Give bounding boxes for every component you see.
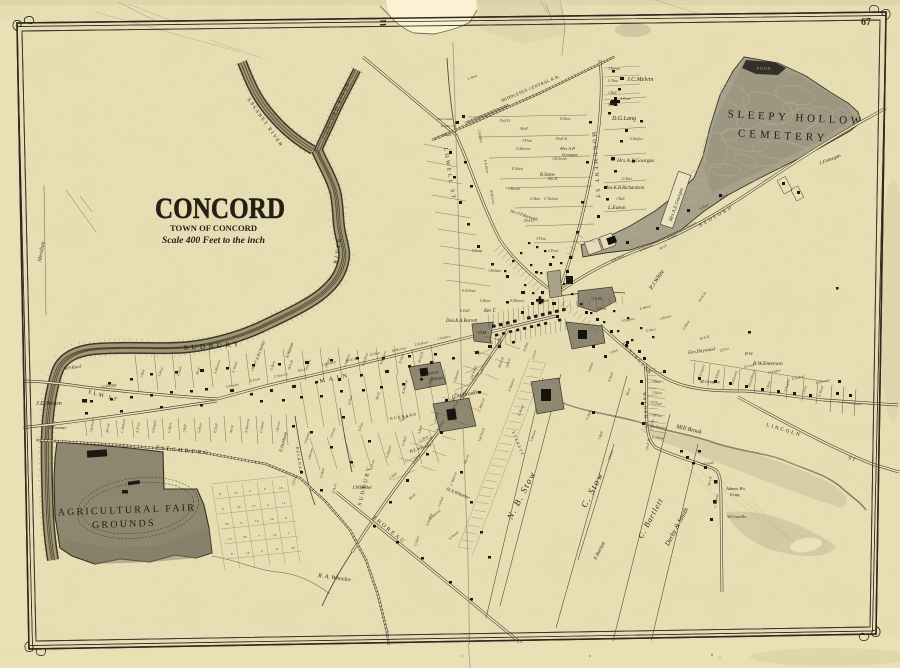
svg-text:8: 8 xyxy=(219,492,221,496)
svg-text:CEM: CEM xyxy=(478,330,487,335)
svg-text:9: 9 xyxy=(264,487,266,491)
svg-text:W.Munroe: W.Munroe xyxy=(510,299,525,303)
svg-text:17: 17 xyxy=(252,504,256,508)
svg-text:A.Pratt: A.Pratt xyxy=(619,97,631,101)
svg-text:Rev T.: Rev T. xyxy=(483,309,496,314)
svg-text:S.Hoar: S.Hoar xyxy=(480,299,491,303)
svg-text:J.D.Brown: J.D.Brown xyxy=(36,401,62,407)
svg-text:J.Ball: J.Ball xyxy=(608,91,616,95)
svg-text:W.Cramer: W.Cramer xyxy=(48,425,67,430)
svg-text:D.Shat.: D.Shat. xyxy=(559,117,571,121)
svg-text:Mrs H.: Mrs H. xyxy=(547,177,558,181)
svg-text:5: 5 xyxy=(240,521,242,525)
svg-text:D.G.Lang: D.G.Lang xyxy=(611,116,636,122)
svg-text:G.Bent: G.Bent xyxy=(608,79,619,83)
svg-text:CONCORD: CONCORD xyxy=(155,192,285,225)
svg-text:E.Hall: E.Hall xyxy=(459,309,469,313)
svg-text:S.Frost: S.Frost xyxy=(548,249,559,253)
svg-text:6: 6 xyxy=(285,516,287,520)
svg-text:R.W.: R.W. xyxy=(744,351,754,356)
svg-text:Town Scale: Town Scale xyxy=(437,117,453,121)
svg-text:Hrs A.P.Gourgas: Hrs A.P.Gourgas xyxy=(616,158,654,164)
svg-text:T.Flint: T.Flint xyxy=(522,139,533,143)
svg-text:G.Bent: G.Bent xyxy=(530,197,541,201)
svg-text:16: 16 xyxy=(291,546,295,550)
svg-text:J.Holden: J.Holden xyxy=(488,269,501,273)
svg-text:15: 15 xyxy=(234,491,238,495)
svg-text:J.Ball: J.Ball xyxy=(616,197,624,201)
svg-text:Scale 400 Feet to the inch: Scale 400 Feet to the inch xyxy=(162,235,265,245)
svg-text:J.C.Melvin: J.C.Melvin xyxy=(627,77,653,83)
svg-text:Depot: Depot xyxy=(442,133,452,137)
svg-text:J.Ball: J.Ball xyxy=(540,299,548,303)
svg-text:A.Munroe: A.Munroe xyxy=(515,147,531,151)
svg-text:18: 18 xyxy=(225,522,229,526)
svg-text:1: 1 xyxy=(288,531,290,535)
svg-text:POND: POND xyxy=(757,66,772,71)
svg-text:S.Frost: S.Frost xyxy=(472,249,483,253)
svg-text:G.Bart.: G.Bart. xyxy=(622,177,633,181)
svg-text:DrA.H.: DrA.H. xyxy=(523,219,535,223)
svg-text:MrsF.: MrsF. xyxy=(519,127,529,131)
svg-text:E.R.Hoar: E.R.Hoar xyxy=(461,289,476,293)
svg-text:3: 3 xyxy=(222,507,224,511)
svg-text:W.Costello: W.Costello xyxy=(727,514,747,519)
svg-text:11: 11 xyxy=(282,501,286,505)
svg-text:Jos.K.B.Richardson: Jos.K.B.Richardson xyxy=(606,186,645,191)
svg-text:HrsE.B.: HrsE.B. xyxy=(555,137,568,141)
svg-text:67: 67 xyxy=(861,17,871,28)
svg-text:DrA.H.: DrA.H. xyxy=(499,119,511,123)
svg-text:2: 2 xyxy=(249,489,251,493)
svg-text:12: 12 xyxy=(255,519,259,523)
svg-text:9: 9 xyxy=(276,547,278,551)
svg-text:S.Hoar: S.Hoar xyxy=(608,103,619,107)
svg-text:GROUNDS: GROUNDS xyxy=(92,518,156,531)
svg-text:Engine Co: Engine Co xyxy=(440,124,456,128)
svg-text:Adams Ho.: Adams Ho. xyxy=(725,486,746,491)
svg-text:15: 15 xyxy=(246,551,250,555)
svg-text:E.Wood: E.Wood xyxy=(511,167,523,171)
svg-text:4: 4 xyxy=(267,503,269,507)
svg-text:7: 7 xyxy=(258,534,260,538)
svg-text:TOWN OF CONCORD: TOWN OF CONCORD xyxy=(170,223,257,233)
svg-text:C.Walcott: C.Walcott xyxy=(544,197,559,201)
svg-text:20: 20 xyxy=(243,535,247,539)
svg-text:19: 19 xyxy=(270,517,274,521)
svg-text:L.Eaton: L.Eaton xyxy=(607,205,626,211)
svg-text:14: 14 xyxy=(273,533,277,537)
svg-text:J.Brown: J.Brown xyxy=(508,187,520,191)
svg-text:8: 8 xyxy=(231,552,233,556)
svg-text:Mrs A.P.: Mrs A.P. xyxy=(559,146,575,151)
svg-text:10: 10 xyxy=(237,505,241,509)
svg-text:Evap.: Evap. xyxy=(729,492,740,497)
svg-text:13: 13 xyxy=(228,537,232,541)
svg-text:16: 16 xyxy=(279,486,283,490)
svg-text:T.Flint: T.Flint xyxy=(536,237,547,241)
svg-text:Dea.R.A.Barrett: Dea.R.A.Barrett xyxy=(445,319,478,324)
svg-text:2: 2 xyxy=(261,549,263,553)
svg-text:S.Staples: S.Staples xyxy=(630,137,644,141)
svg-text:R.W.Emerson: R.W.Emerson xyxy=(752,361,783,367)
svg-text:CEM: CEM xyxy=(591,296,602,301)
svg-text:J.Brown: J.Brown xyxy=(608,67,620,71)
svg-text:A.Pratt: A.Pratt xyxy=(595,307,607,311)
svg-text:J.M.Smith: J.M.Smith xyxy=(552,157,567,161)
